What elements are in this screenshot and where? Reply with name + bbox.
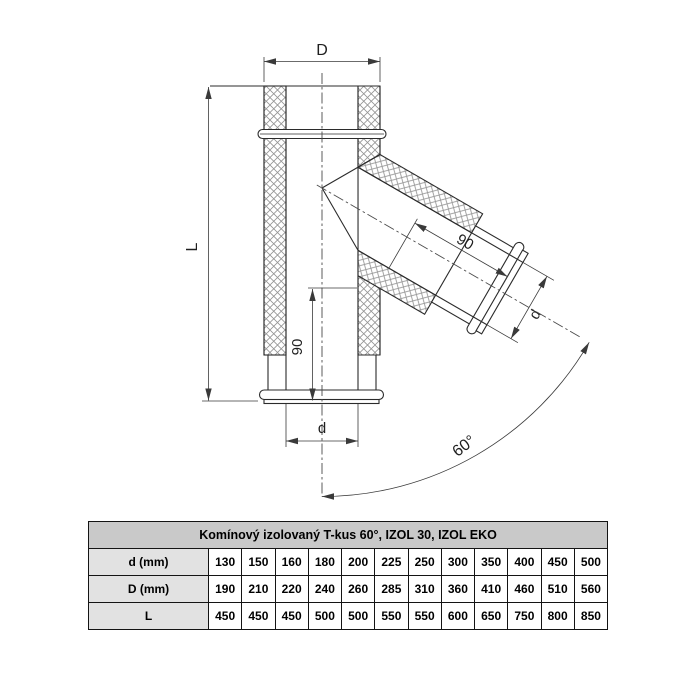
value-cell: 500	[342, 603, 375, 630]
value-cell: 160	[275, 549, 308, 576]
value-cell: 500	[308, 603, 341, 630]
value-cell: 225	[375, 549, 408, 576]
table-title: Komínový izolovaný T-kus 60°, IZOL 30, I…	[89, 522, 608, 549]
angle-arc	[322, 342, 589, 496]
spec-table-body: d (mm)1301501601802002252503003504004505…	[89, 549, 608, 630]
main-insulation-left	[264, 86, 286, 355]
value-cell: 250	[408, 549, 441, 576]
value-cell: 285	[375, 576, 408, 603]
bottom-diameter-label: d	[318, 420, 326, 437]
dimension-90-main	[308, 288, 357, 401]
value-cell: 450	[275, 603, 308, 630]
dimension-L	[202, 87, 258, 401]
value-cell: 150	[242, 549, 275, 576]
main-offset-label: 90	[289, 339, 306, 356]
value-cell: 240	[308, 576, 341, 603]
value-cell: 600	[441, 603, 474, 630]
value-cell: 560	[574, 576, 607, 603]
value-cell: 500	[574, 549, 607, 576]
product-drawing-page: 90 d D L 90	[0, 0, 693, 679]
value-cell: 550	[408, 603, 441, 630]
value-cell: 200	[342, 549, 375, 576]
table-row: L450450450500500550550600650750800850	[89, 603, 608, 630]
branch-pipe: 90 d	[288, 135, 609, 387]
table-row: D (mm)1902102202402602853103604104605105…	[89, 576, 608, 603]
value-cell: 650	[475, 603, 508, 630]
value-cell: 360	[441, 576, 474, 603]
value-cell: 260	[342, 576, 375, 603]
length-label: L	[184, 242, 201, 251]
table-title-row: Komínový izolovaný T-kus 60°, IZOL 30, I…	[89, 522, 608, 549]
value-cell: 750	[508, 603, 541, 630]
value-cell: 450	[541, 549, 574, 576]
value-cell: 460	[508, 576, 541, 603]
row-label: L	[89, 603, 209, 630]
row-label: d (mm)	[89, 549, 209, 576]
value-cell: 510	[541, 576, 574, 603]
value-cell: 300	[441, 549, 474, 576]
value-cell: 130	[209, 549, 242, 576]
value-cell: 550	[375, 603, 408, 630]
value-cell: 190	[209, 576, 242, 603]
bottom-flange	[260, 390, 384, 404]
value-cell: 450	[242, 603, 275, 630]
value-cell: 410	[475, 576, 508, 603]
outer-diameter-label: D	[316, 42, 328, 59]
table-row: d (mm)1301501601802002252503003504004505…	[89, 549, 608, 576]
value-cell: 800	[541, 603, 574, 630]
value-cell: 450	[209, 603, 242, 630]
spec-table: Komínový izolovaný T-kus 60°, IZOL 30, I…	[88, 521, 608, 630]
value-cell: 400	[508, 549, 541, 576]
value-cell: 210	[242, 576, 275, 603]
value-cell: 350	[475, 549, 508, 576]
value-cell: 850	[574, 603, 607, 630]
main-insulation-right-upper	[358, 86, 380, 167]
value-cell: 220	[275, 576, 308, 603]
row-label: D (mm)	[89, 576, 209, 603]
value-cell: 180	[308, 549, 341, 576]
value-cell: 310	[408, 576, 441, 603]
